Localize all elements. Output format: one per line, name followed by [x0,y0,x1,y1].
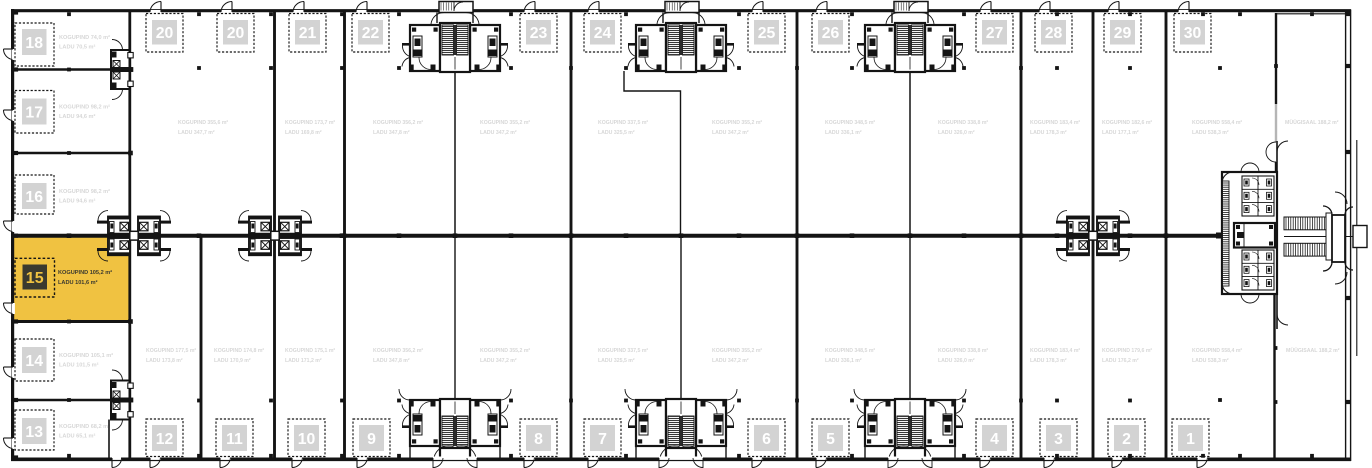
svg-text:24: 24 [594,25,612,42]
svg-text:14: 14 [25,353,43,370]
svg-text:LADU 325,5 m²: LADU 325,5 m² [598,130,635,136]
svg-text:8: 8 [534,431,543,448]
svg-text:7: 7 [598,431,607,448]
svg-text:LADU 347,2 m²: LADU 347,2 m² [712,358,749,364]
svg-text:MÜÜGISAAL 188,2 m²: MÜÜGISAAL 188,2 m² [1285,119,1339,126]
svg-text:KOGUPIND 355,6 m²: KOGUPIND 355,6 m² [178,120,228,126]
svg-text:LADU 70,5 m²: LADU 70,5 m² [59,44,96,51]
svg-text:21: 21 [299,25,317,42]
svg-text:LADU 347,8 m²: LADU 347,8 m² [373,130,410,136]
svg-text:4: 4 [990,431,999,448]
svg-text:KOGUPIND 173,7 m²: KOGUPIND 173,7 m² [285,120,335,126]
svg-text:LADU 347,2 m²: LADU 347,2 m² [480,358,517,364]
svg-text:LADU 325,5 m²: LADU 325,5 m² [598,358,635,364]
svg-text:LADU 171,2 m²: LADU 171,2 m² [285,358,322,364]
svg-text:KOGUPIND 183,4 m²: KOGUPIND 183,4 m² [1030,120,1080,126]
svg-text:LADU 101,5 m²: LADU 101,5 m² [59,362,99,369]
svg-text:5: 5 [826,431,835,448]
svg-text:KOGUPIND 183,4 m²: KOGUPIND 183,4 m² [1030,348,1080,354]
svg-text:LADU 94,6 m²: LADU 94,6 m² [59,198,96,205]
svg-text:LADU 538,3 m²: LADU 538,3 m² [1192,130,1229,136]
svg-text:9: 9 [367,431,376,448]
svg-text:LADU 336,1 m²: LADU 336,1 m² [825,130,862,136]
svg-text:29: 29 [1114,25,1132,42]
svg-text:KOGUPIND 175,1 m²: KOGUPIND 175,1 m² [285,348,335,354]
svg-text:LADU 94,6 m²: LADU 94,6 m² [59,113,96,120]
svg-text:KOGUPIND 68,2 m²: KOGUPIND 68,2 m² [59,423,110,430]
svg-text:KOGUPIND 98,2 m²: KOGUPIND 98,2 m² [59,188,110,195]
svg-text:KOGUPIND 355,2 m²: KOGUPIND 355,2 m² [480,120,530,126]
svg-text:LADU 169,8 m²: LADU 169,8 m² [285,130,322,136]
svg-text:15: 15 [26,270,44,287]
svg-text:KOGUPIND 338,8 m²: KOGUPIND 338,8 m² [938,348,988,354]
svg-text:16: 16 [25,189,43,206]
svg-text:LADU 101,6 m²: LADU 101,6 m² [58,279,98,286]
svg-text:KOGUPIND 355,2 m²: KOGUPIND 355,2 m² [712,120,762,126]
svg-text:KOGUPIND 337,5 m²: KOGUPIND 337,5 m² [598,120,648,126]
svg-text:KOGUPIND 174,8 m²: KOGUPIND 174,8 m² [214,348,264,354]
svg-text:LADU 347,2 m²: LADU 347,2 m² [712,130,749,136]
svg-text:18: 18 [25,35,43,52]
svg-text:KOGUPIND 177,5 m²: KOGUPIND 177,5 m² [146,348,196,354]
svg-text:KOGUPIND 74,0 m²: KOGUPIND 74,0 m² [59,34,110,41]
svg-text:LADU 65,1 m²: LADU 65,1 m² [59,433,96,440]
svg-text:KOGUPIND 355,2 m²: KOGUPIND 355,2 m² [480,348,530,354]
svg-text:LADU 326,0 m²: LADU 326,0 m² [938,130,975,136]
svg-text:LADU 170,9 m²: LADU 170,9 m² [214,358,251,364]
svg-text:1: 1 [1186,431,1195,448]
svg-text:LADU 538,3 m²: LADU 538,3 m² [1192,358,1229,364]
svg-text:KOGUPIND 182,6 m²: KOGUPIND 182,6 m² [1102,120,1152,126]
svg-text:LADU 176,2 m²: LADU 176,2 m² [1102,358,1139,364]
svg-text:KOGUPIND 179,6 m²: KOGUPIND 179,6 m² [1102,348,1152,354]
svg-text:20: 20 [156,25,174,42]
svg-text:LADU 347,2 m²: LADU 347,2 m² [480,130,517,136]
svg-text:13: 13 [25,424,43,441]
svg-text:KOGUPIND 105,1 m²: KOGUPIND 105,1 m² [59,352,113,359]
svg-text:2: 2 [1122,431,1131,448]
svg-text:KOGUPIND 356,2 m²: KOGUPIND 356,2 m² [373,120,423,126]
svg-text:3: 3 [1054,431,1063,448]
svg-text:MÜÜGISAAL 188,2 m²: MÜÜGISAAL 188,2 m² [1286,347,1340,354]
svg-text:KOGUPIND 558,4 m²: KOGUPIND 558,4 m² [1192,120,1242,126]
svg-text:LADU 336,1 m²: LADU 336,1 m² [825,358,862,364]
svg-text:KOGUPIND 348,5 m²: KOGUPIND 348,5 m² [825,120,875,126]
svg-text:LADU 178,3 m²: LADU 178,3 m² [1030,358,1067,364]
svg-text:26: 26 [822,25,840,42]
svg-text:KOGUPIND 348,5 m²: KOGUPIND 348,5 m² [825,348,875,354]
svg-text:KOGUPIND 558,4 m²: KOGUPIND 558,4 m² [1192,348,1242,354]
svg-text:KOGUPIND 98,2 m²: KOGUPIND 98,2 m² [59,104,110,111]
svg-text:20: 20 [227,25,245,42]
svg-text:LADU 178,3 m²: LADU 178,3 m² [1030,130,1067,136]
svg-text:LADU 347,7 m²: LADU 347,7 m² [178,130,215,136]
svg-text:LADU 177,1 m²: LADU 177,1 m² [1102,130,1139,136]
svg-text:KOGUPIND 338,8 m²: KOGUPIND 338,8 m² [938,120,988,126]
svg-text:10: 10 [298,431,316,448]
svg-text:30: 30 [1184,25,1202,42]
svg-text:11: 11 [226,431,243,448]
svg-text:23: 23 [530,25,548,42]
svg-text:27: 27 [986,25,1004,42]
svg-text:22: 22 [362,25,380,42]
svg-text:LADU 326,0 m²: LADU 326,0 m² [938,358,975,364]
svg-text:12: 12 [156,431,174,448]
svg-text:25: 25 [758,25,776,42]
svg-text:17: 17 [25,105,43,122]
svg-text:LADU 173,8 m²: LADU 173,8 m² [146,358,183,364]
svg-text:KOGUPIND 356,2 m²: KOGUPIND 356,2 m² [373,348,423,354]
svg-text:6: 6 [762,431,771,448]
svg-text:LADU 347,8 m²: LADU 347,8 m² [373,358,410,364]
svg-text:28: 28 [1045,25,1063,42]
svg-text:KOGUPIND 337,5 m²: KOGUPIND 337,5 m² [598,348,648,354]
svg-text:KOGUPIND 355,2 m²: KOGUPIND 355,2 m² [712,348,762,354]
svg-text:KOGUPIND 105,2 m²: KOGUPIND 105,2 m² [58,269,112,276]
